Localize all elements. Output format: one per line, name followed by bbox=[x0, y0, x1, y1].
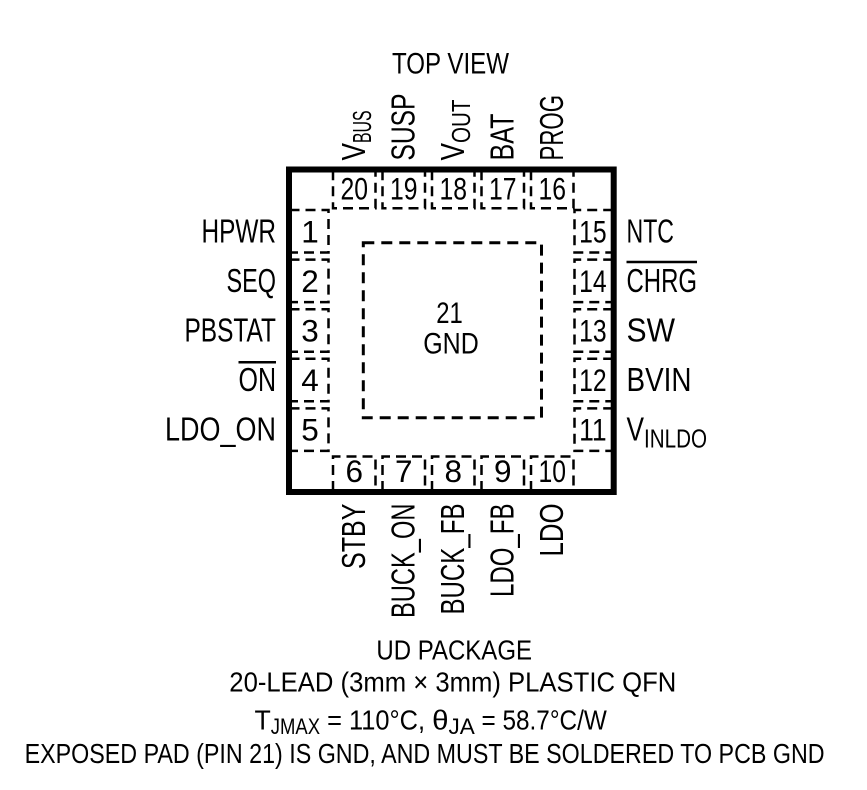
svg-text:BVIN: BVIN bbox=[627, 361, 692, 398]
svg-text:LDO: LDO bbox=[533, 504, 570, 557]
svg-text:GND: GND bbox=[423, 328, 479, 361]
svg-text:HPWR: HPWR bbox=[202, 212, 277, 249]
svg-text:18: 18 bbox=[440, 170, 468, 206]
svg-text:1: 1 bbox=[301, 213, 319, 249]
svg-text:LDO_FB: LDO_FB bbox=[483, 504, 520, 598]
svg-text:20: 20 bbox=[341, 170, 369, 206]
svg-text:15: 15 bbox=[579, 213, 607, 249]
svg-text:SEQ: SEQ bbox=[227, 262, 277, 299]
svg-text:2: 2 bbox=[301, 263, 319, 299]
svg-text:STBY: STBY bbox=[335, 504, 372, 570]
svg-text:21: 21 bbox=[436, 297, 463, 330]
svg-text:5: 5 bbox=[301, 412, 319, 448]
svg-text:20-LEAD (3mm × 3mm) PLASTIC QF: 20-LEAD (3mm × 3mm) PLASTIC QFN bbox=[229, 667, 676, 698]
svg-text:SUSP: SUSP bbox=[384, 94, 421, 161]
svg-text:LDO_ON: LDO_ON bbox=[165, 411, 276, 448]
svg-text:BAT: BAT bbox=[483, 114, 520, 161]
svg-text:16: 16 bbox=[539, 170, 567, 206]
svg-text:BUCK_ON: BUCK_ON bbox=[384, 504, 421, 619]
svg-text:CHRG: CHRG bbox=[627, 262, 698, 299]
svg-text:PROG: PROG bbox=[533, 95, 570, 161]
svg-text:6: 6 bbox=[345, 453, 363, 489]
svg-text:TOP VIEW: TOP VIEW bbox=[392, 47, 509, 80]
svg-text:NTC: NTC bbox=[627, 212, 675, 249]
svg-text:12: 12 bbox=[579, 362, 607, 398]
svg-text:BUCK_FB: BUCK_FB bbox=[434, 504, 471, 615]
svg-text:11: 11 bbox=[579, 412, 607, 448]
svg-text:EXPOSED PAD (PIN 21) IS GND, A: EXPOSED PAD (PIN 21) IS GND, AND MUST BE… bbox=[25, 738, 825, 769]
svg-text:10: 10 bbox=[539, 453, 567, 489]
svg-text:3: 3 bbox=[301, 313, 319, 349]
svg-text:13: 13 bbox=[579, 313, 607, 349]
svg-text:SW: SW bbox=[627, 312, 676, 349]
svg-text:UD PACKAGE: UD PACKAGE bbox=[376, 634, 532, 665]
svg-text:19: 19 bbox=[390, 170, 418, 206]
svg-text:14: 14 bbox=[579, 263, 607, 299]
svg-text:PBSTAT: PBSTAT bbox=[185, 312, 277, 349]
svg-text:ON: ON bbox=[239, 361, 277, 398]
svg-text:7: 7 bbox=[395, 453, 413, 489]
svg-text:17: 17 bbox=[489, 170, 517, 206]
svg-text:4: 4 bbox=[301, 362, 319, 398]
svg-text:9: 9 bbox=[494, 453, 512, 489]
svg-text:8: 8 bbox=[444, 453, 462, 489]
